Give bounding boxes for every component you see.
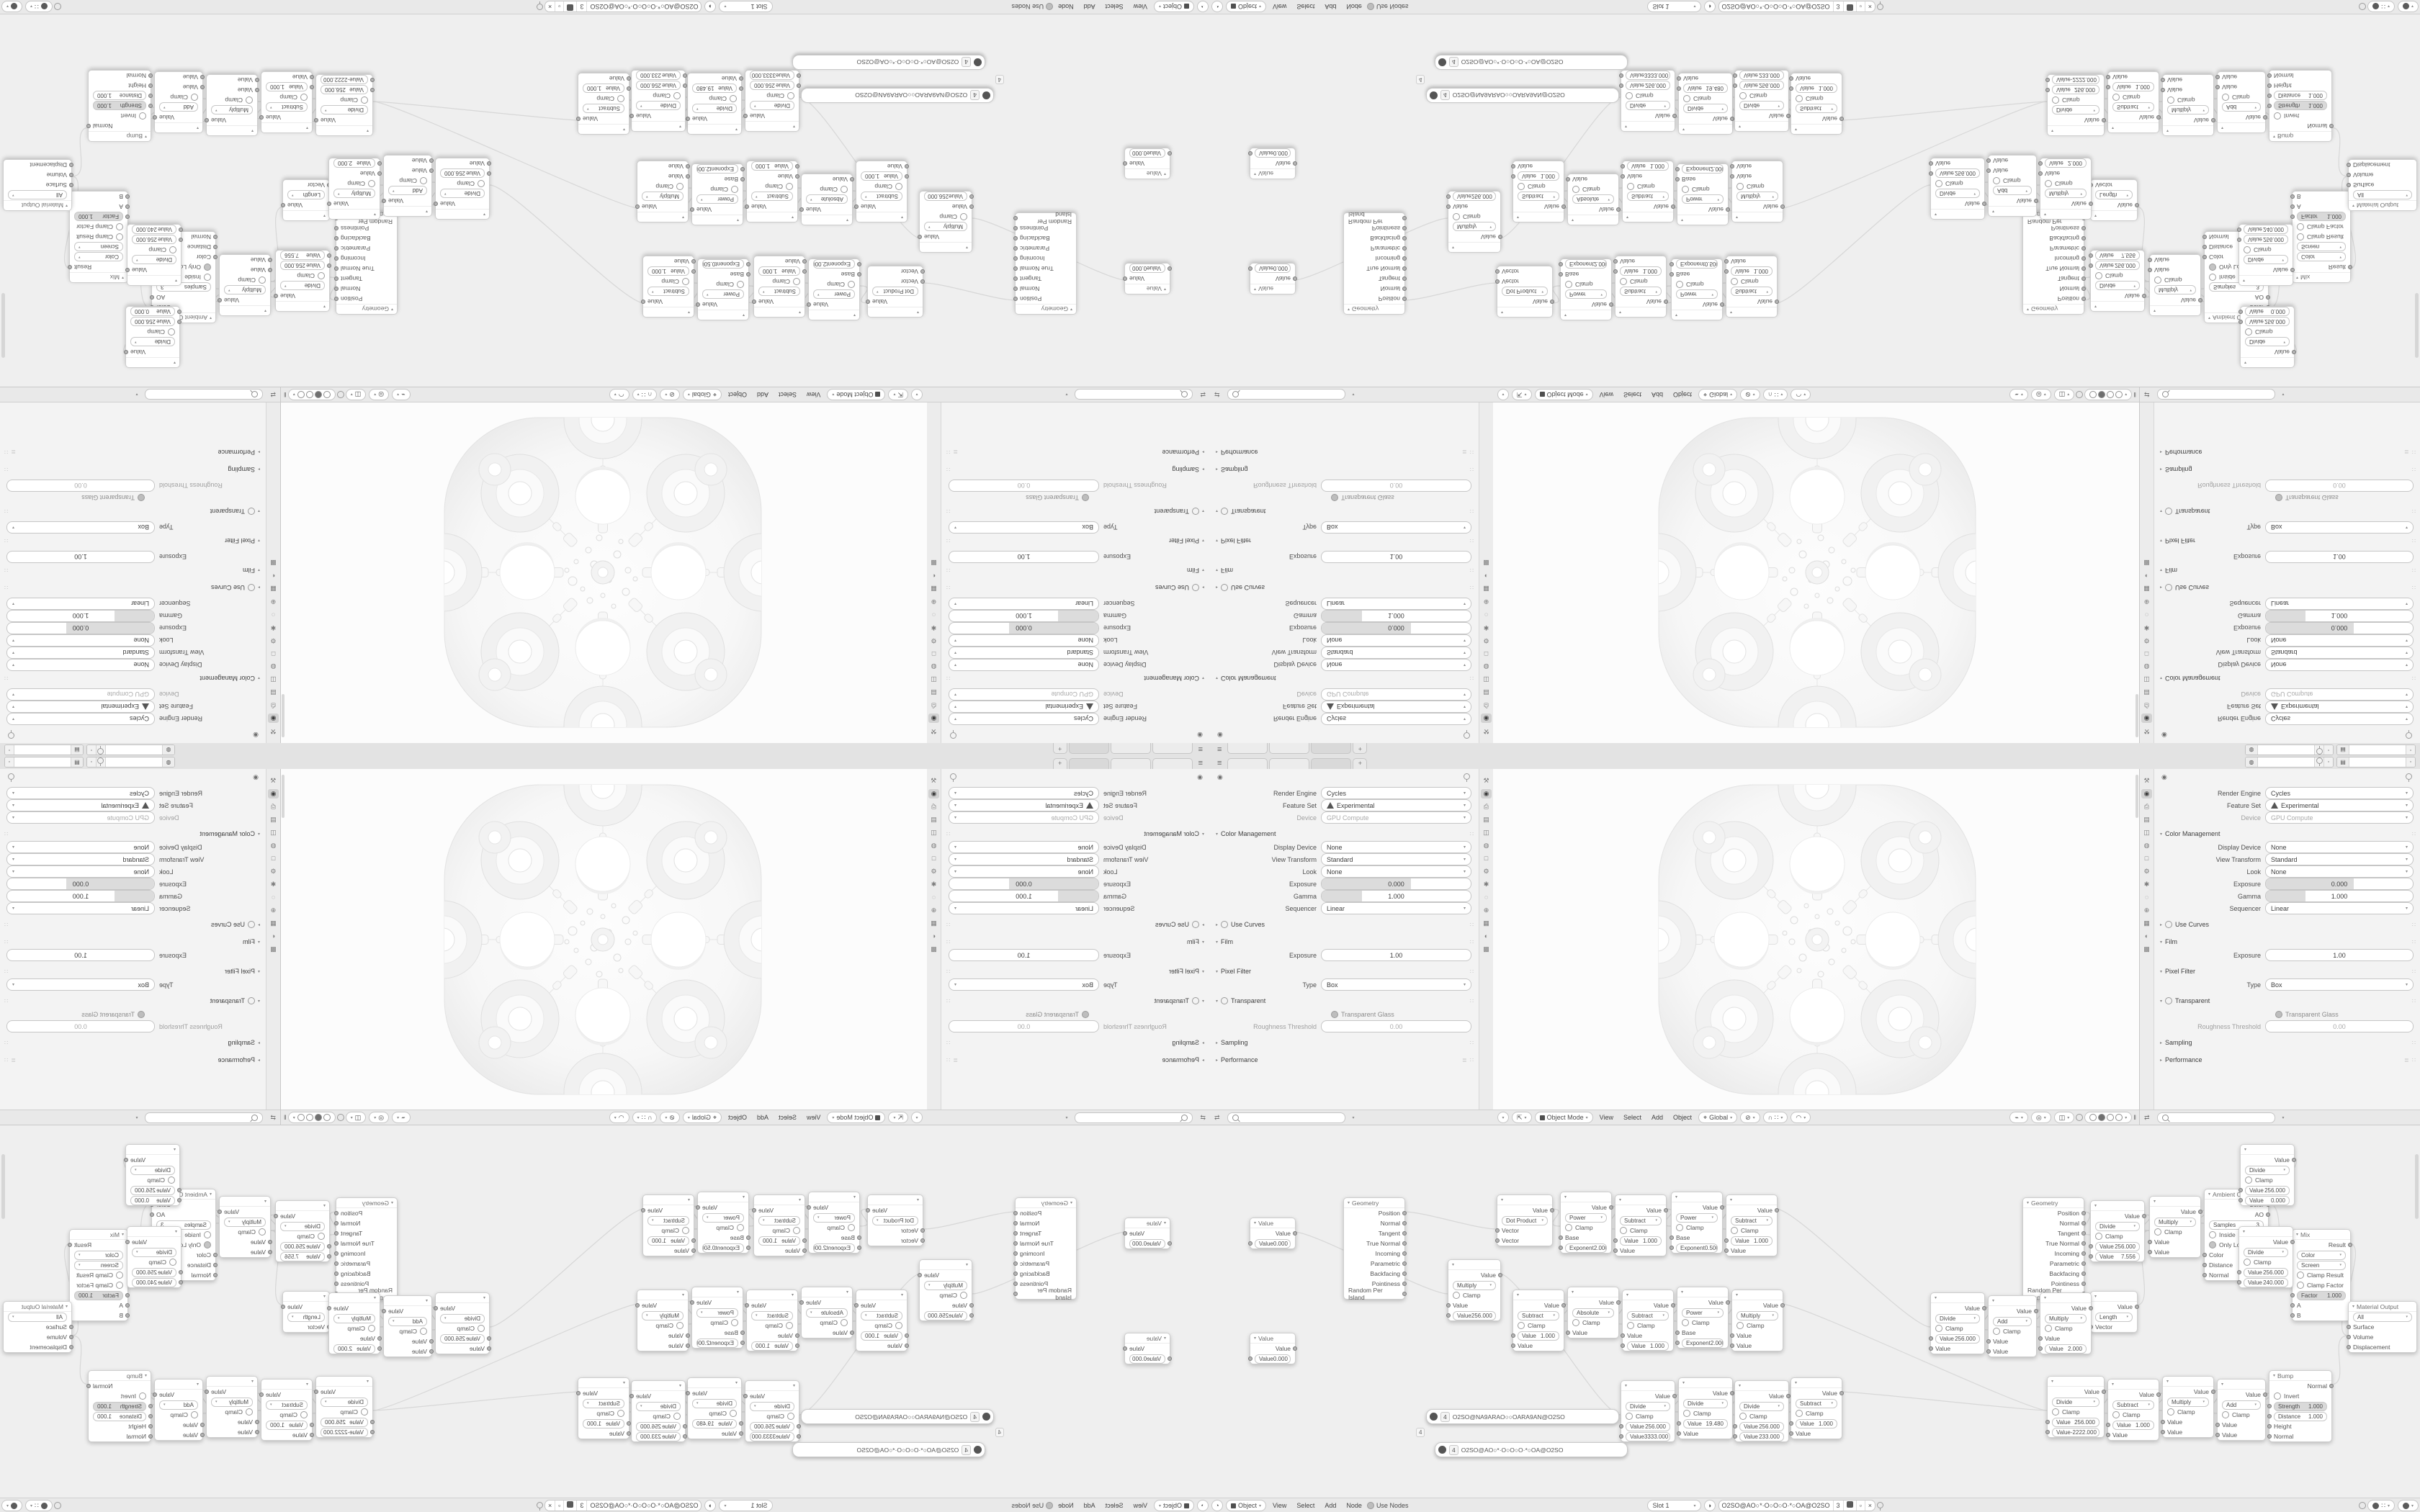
shading-mode-group[interactable]: ▾ <box>2084 389 2132 400</box>
output-socket[interactable] <box>1013 1211 1018 1215</box>
output-socket[interactable] <box>696 1205 700 1210</box>
value-field-value[interactable]: Value0.000 <box>1129 1354 1165 1364</box>
node-select-menu[interactable]: Select <box>1106 1502 1124 1509</box>
input-socket[interactable] <box>125 1293 130 1297</box>
properties-search-input[interactable] <box>1227 1112 1345 1123</box>
properties-pin-icon[interactable] <box>2406 773 2412 781</box>
scene-name-field[interactable] <box>106 757 162 767</box>
properties-search-input[interactable] <box>145 1112 263 1123</box>
select-look[interactable]: None▾ <box>6 865 155 878</box>
node-vector-math[interactable]: ▾ValueDot Product▾VectorVector <box>867 1194 923 1246</box>
properties-tab-tool-icon[interactable]: ⚒ <box>2141 726 2152 736</box>
unlink-material-button[interactable]: × <box>1865 1500 1875 1511</box>
field-exposure[interactable]: 0.000 <box>949 878 1099 890</box>
use-nodes-checkbox[interactable] <box>1046 1502 1053 1509</box>
output-socket[interactable] <box>1402 236 1407 240</box>
render-preview-dot[interactable] <box>337 391 344 398</box>
node-math[interactable]: ▾ValueSubtract▾ClampValue1.000Value <box>578 73 629 135</box>
checkbox-clamp[interactable] <box>2244 246 2251 253</box>
mode-select[interactable]: Object Mode▾ <box>827 1112 885 1123</box>
output-socket[interactable] <box>1720 1205 1724 1210</box>
node-math[interactable]: ▾ValueMultiply▾ClampValueValue256.000 <box>1448 1259 1501 1321</box>
value-field-value[interactable]: Value1.000 <box>1518 172 1559 181</box>
output-socket[interactable] <box>153 1392 157 1397</box>
value-field-value[interactable]: Value0.000 <box>130 1196 175 1205</box>
output-socket[interactable] <box>2081 266 2086 271</box>
input-socket[interactable] <box>2106 1423 2110 1427</box>
field-exposure[interactable]: 1.00 <box>6 551 155 563</box>
properties-tab-scene-icon[interactable]: ◫ <box>928 675 939 684</box>
output-socket[interactable] <box>334 246 339 251</box>
node-editor-icon[interactable]: ◔ <box>1197 1500 1209 1511</box>
input-socket[interactable] <box>2202 1253 2207 1257</box>
properties-tab-render-icon[interactable]: ◉ <box>2141 789 2152 798</box>
node-collapse-icon[interactable]: ▾ <box>251 128 254 133</box>
viewport-3d[interactable]: ▾ ⇱▾ Object Mode▾ ViewSelectAddObject ⌖ … <box>1493 387 2139 743</box>
viewport-select-menu[interactable]: Select <box>1623 1114 1641 1121</box>
section-checkbox[interactable] <box>2165 584 2172 591</box>
node-collapse-icon[interactable]: ▾ <box>1681 1290 1683 1295</box>
output-socket[interactable] <box>1013 287 1018 291</box>
operation-select[interactable]: Multiply▾ <box>2045 189 2087 199</box>
select-sequencer[interactable]: Linear▾ <box>6 902 155 914</box>
checkbox-clamp[interactable] <box>960 213 967 220</box>
output-socket[interactable] <box>799 207 804 212</box>
mode-select[interactable]: Object Mode▾ <box>1535 1112 1593 1123</box>
checkbox-clamp[interactable] <box>361 1408 368 1416</box>
input-socket[interactable] <box>850 177 854 181</box>
input-socket[interactable] <box>905 164 909 168</box>
operation-select[interactable]: Divide▾ <box>1739 102 1784 111</box>
properties-tab-tool-icon[interactable]: ⚒ <box>1481 776 1492 786</box>
orientation-select[interactable]: ⌖ Global▾ <box>1698 1112 1737 1123</box>
value-field-value[interactable]: Value7.556 <box>2095 251 2140 261</box>
datablock-bar[interactable]: 4O2SO@NA9ARAO○○OARA9AN@O2SO <box>1426 1409 1619 1424</box>
node-collapse-icon[interactable]: ▾ <box>174 1147 176 1152</box>
output-socket[interactable] <box>124 350 128 354</box>
node-collapse-icon[interactable]: ▾ <box>2094 1294 2097 1299</box>
node-math[interactable]: ▾ValueDivide▾ClampValue256.000Value0.000 <box>2240 306 2295 368</box>
input-socket[interactable] <box>802 1248 807 1253</box>
node-math[interactable]: ▾ValueMultiply▾ClampValueValue <box>206 1376 258 1438</box>
operation-select[interactable]: Divide▾ <box>2095 282 2140 291</box>
node-math[interactable]: ▾ValueSubtract▾ClampValue1.000Value <box>1726 1194 1778 1256</box>
scene-new-button[interactable]: ▫ <box>87 757 97 767</box>
properties-tab-material-icon[interactable]: ◐ <box>1481 571 1492 580</box>
node-collapse-icon[interactable]: ▾ <box>1619 310 1621 315</box>
section-checkbox[interactable] <box>1221 921 1228 928</box>
viewport-add-menu[interactable]: Add <box>757 391 768 398</box>
header-collapse-icon[interactable]: ▾ <box>1065 392 1067 397</box>
node-math[interactable]: ▾ValueDivide▾ClampValue256.000Value3333.… <box>1621 1380 1675 1442</box>
input-socket[interactable] <box>2237 1270 2241 1274</box>
output-socket[interactable] <box>807 302 811 307</box>
section-use-curves[interactable]: ▸Use Curves∷ <box>1216 918 1474 931</box>
select-device[interactable]: GPU Compute▾ <box>2265 811 2414 824</box>
snap-node-dot[interactable] <box>2359 1502 2366 1509</box>
view-layer-selector[interactable]: ▤ ▫ <box>4 757 84 768</box>
copy-material-button[interactable]: ▫ <box>555 1500 564 1511</box>
operation-select[interactable]: Subtract▾ <box>266 1400 308 1410</box>
header-collapse-icon[interactable]: ▾ <box>1353 1115 1355 1120</box>
checkbox-clamp[interactable] <box>1453 1292 1460 1299</box>
field-roughness-threshold[interactable]: 0.00 <box>2265 1020 2414 1032</box>
checkbox-clamp[interactable] <box>1518 1322 1525 1329</box>
node-collapse-icon[interactable]: ▾ <box>792 215 794 220</box>
select-look[interactable]: None▾ <box>2265 865 2414 878</box>
input-socket[interactable] <box>1621 1333 1625 1338</box>
orientation-select[interactable]: ⌖ Global▾ <box>683 1112 722 1123</box>
input-socket[interactable] <box>1670 1236 1674 1240</box>
material-pin-icon[interactable] <box>537 3 543 11</box>
node-collapse-icon[interactable]: ▾ <box>391 307 393 312</box>
operation-select[interactable]: Power▾ <box>1676 1213 1718 1223</box>
value-field-distance[interactable]: Distance1.000 <box>93 91 146 101</box>
properties-tab-output-icon[interactable]: ⎙ <box>928 701 939 710</box>
node-math[interactable]: ▾ValueDivide▾ClampValue256.000Value233.0… <box>1734 70 1789 132</box>
input-socket[interactable] <box>179 1270 183 1274</box>
node-math[interactable]: ▾ValueMultiply▾ClampValueValue2.000 <box>2040 1292 2092 1354</box>
node-node-menu[interactable]: Node <box>1346 1502 1362 1509</box>
input-socket[interactable] <box>795 1344 799 1348</box>
input-socket[interactable] <box>1559 262 1563 266</box>
checkbox-clamp[interactable] <box>1453 213 1460 220</box>
node-math[interactable]: ▾ValueDivide▾ClampValue256.000Value0.000 <box>125 1144 180 1206</box>
node-collapse-icon[interactable]: ▾ <box>1254 287 1256 292</box>
output-socket[interactable] <box>334 297 339 301</box>
node-collapse-icon[interactable]: ▾ <box>853 1194 856 1200</box>
value-field-value[interactable]: Value2.000 <box>333 1344 375 1354</box>
section-color-management[interactable]: ▾Color Management∷ <box>946 827 1204 840</box>
properties-tab-material-icon[interactable]: ◐ <box>2141 932 2152 941</box>
node-math[interactable]: ▾ValueDivide▾ClampValue19.480Value <box>1678 1377 1733 1439</box>
section-sampling[interactable]: ▸Sampling∷ <box>2160 1036 2416 1049</box>
checkbox-clamp[interactable] <box>300 1411 308 1418</box>
section-color-management[interactable]: ▾Color Management∷ <box>4 672 260 685</box>
node-math[interactable]: ▾ValueMultiply▾ClampValueValue256.000 <box>1448 191 1501 253</box>
output-socket[interactable] <box>2081 1282 2086 1286</box>
node-collapse-icon[interactable]: ▾ <box>1254 1220 1256 1225</box>
checkbox-clamp[interactable] <box>2245 328 2252 336</box>
app-menu-icon[interactable]: ≡ <box>1217 760 1222 768</box>
output-socket[interactable] <box>1013 266 1018 271</box>
node-math[interactable]: ▾ValueAbsolute▾ClampValue <box>1567 174 1619 225</box>
properties-tab-object-icon[interactable]: □ <box>1481 649 1492 658</box>
material-datablock[interactable]: O2SO@AO○*·O○O○O·*○OA@O2SO 3 ▫ × <box>544 1500 702 1511</box>
section-checkbox[interactable] <box>248 921 255 928</box>
use-nodes-checkbox[interactable] <box>1046 3 1053 10</box>
output-socket[interactable] <box>690 207 694 212</box>
checkbox-clamp[interactable] <box>730 95 737 102</box>
checkbox-clamp[interactable] <box>895 1322 902 1329</box>
node-math[interactable]: ▾ValueMultiply▾ClampValueValue <box>1731 161 1783 222</box>
output-socket[interactable] <box>2211 118 2215 122</box>
input-socket[interactable] <box>1675 177 1680 181</box>
node-math[interactable]: ▾ValuePower▾ClampBaseExponent2.000 <box>1677 1287 1729 1349</box>
operation-select[interactable]: Multiply▾ <box>2167 1398 2209 1407</box>
output-socket[interactable] <box>1839 117 1844 121</box>
node-math[interactable]: ▾ValueMultiply▾ClampValueValue <box>2162 1376 2214 1438</box>
output-socket[interactable] <box>1402 1272 1407 1276</box>
node-collapse-icon[interactable]: ▾ <box>2044 212 2046 217</box>
operation-select[interactable]: Length▾ <box>2095 191 2133 200</box>
input-socket[interactable] <box>377 161 382 166</box>
section-pixel-filter[interactable]: ▾Pixel Filter∷ <box>946 965 1204 978</box>
section-film[interactable]: ▾Film∷ <box>946 935 1204 948</box>
checkbox-clamp[interactable] <box>731 1319 738 1326</box>
node-add-menu[interactable]: Add <box>1325 1502 1336 1509</box>
node-view-menu[interactable]: View <box>1134 3 1147 10</box>
output-socket[interactable] <box>334 276 339 281</box>
editor-options-button[interactable]: ▾ <box>1497 1112 1509 1123</box>
value-field-exponent[interactable]: Exponent0.500 <box>1676 1243 1718 1253</box>
filter-icon[interactable]: ⇄ <box>1214 391 1220 399</box>
output-socket[interactable] <box>1402 1211 1407 1215</box>
node-math[interactable]: ▾ValueDivide▾ClampValue256.000Value240.0… <box>2238 1226 2293 1288</box>
input-socket[interactable] <box>1613 259 1618 264</box>
output-socket[interactable] <box>2102 1390 2106 1394</box>
value-field-distance[interactable]: Distance1.000 <box>2274 91 2327 101</box>
output-socket[interactable] <box>2198 298 2202 302</box>
field-exposure[interactable]: 1.00 <box>2265 551 2414 563</box>
node-math[interactable]: ▾ValuePower▾ClampBaseExponent2.000 <box>1560 1192 1612 1254</box>
value-field-value[interactable]: Value2.000 <box>2045 1344 2087 1354</box>
node-collapse-icon[interactable]: ▾ <box>799 1197 801 1202</box>
node-vector-math[interactable]: ▾ValueLength▾Vector <box>2090 1291 2138 1333</box>
view-layer-selector[interactable]: ▤ ▫ <box>4 744 84 755</box>
node-mix[interactable]: ▾MixResultColor▾Screen▾Clamp ResultClamp… <box>2292 191 2351 283</box>
properties-tab-scene-icon[interactable]: ◫ <box>1481 828 1492 837</box>
node-collapse-icon[interactable]: ▾ <box>2208 315 2210 320</box>
node-math[interactable]: ▾ValueSubtract▾ClampValueValue1.000 <box>746 161 798 222</box>
input-socket[interactable] <box>802 269 807 274</box>
input-socket[interactable] <box>1511 174 1515 179</box>
operation-select[interactable]: Divide▾ <box>440 189 485 199</box>
node-bump[interactable]: ▾BumpNormalInvertStrength1.000Distance1.… <box>2269 70 2332 142</box>
input-socket[interactable] <box>1613 269 1618 274</box>
node-collapse-icon[interactable]: ▾ <box>917 1197 919 1202</box>
value-field-value[interactable]: Value233.000 <box>636 71 681 81</box>
input-socket[interactable] <box>2215 75 2220 79</box>
viewport-scrollbar[interactable] <box>2136 694 2138 737</box>
input-socket[interactable] <box>1789 86 1793 91</box>
node-collapse-icon[interactable]: ▾ <box>1517 215 1519 220</box>
input-socket[interactable] <box>627 1421 631 1426</box>
input-socket[interactable] <box>200 85 205 89</box>
properties-tab-object-icon[interactable]: □ <box>2141 649 2152 658</box>
input-socket[interactable] <box>2347 1345 2351 1349</box>
checkbox-clamp[interactable] <box>1676 1224 1683 1231</box>
checkbox-clamp[interactable] <box>1626 92 1633 99</box>
operation-select[interactable]: Subtract▾ <box>1518 1311 1559 1320</box>
operation-select[interactable]: Dot Product▾ <box>1502 287 1548 297</box>
node-collapse-icon[interactable]: ▾ <box>1935 212 1937 217</box>
node-collapse-icon[interactable]: ▾ <box>846 217 848 222</box>
node-collapse-icon[interactable]: ▾ <box>1254 1336 1256 1341</box>
section-performance[interactable]: ▸Performance≣ ∷ <box>1216 1053 1474 1066</box>
node-math[interactable]: ▾ValueAdd▾ClampValueValue <box>154 1379 203 1441</box>
node-collapse-icon[interactable]: ▾ <box>367 128 369 133</box>
node-math[interactable]: ▾ValueDivide▾ClampValue256.000Value <box>435 1292 490 1354</box>
input-socket[interactable] <box>691 269 696 274</box>
operation-select[interactable]: Divide▾ <box>2244 256 2288 265</box>
output-socket[interactable] <box>1616 207 1621 212</box>
node-collapse-icon[interactable]: ▾ <box>1254 171 1256 176</box>
operation-select[interactable]: Subtract▾ <box>758 287 800 297</box>
node-snapping-select[interactable]: ∷▾ <box>25 1 53 12</box>
snap-node-dot[interactable] <box>54 3 61 10</box>
output-socket[interactable] <box>2102 118 2106 122</box>
node-math[interactable]: ▾ValueDivide▾ClampValue256.000Value240.0… <box>2238 224 2293 286</box>
proportional-edit-select[interactable]: ◠▾ <box>609 1112 629 1123</box>
node-math[interactable]: ▾ValueAdd▾ClampValueValue <box>2217 1379 2266 1441</box>
properties-tab-object-data-icon[interactable]: ▦ <box>928 584 939 593</box>
workspace-tab[interactable] <box>1227 743 1268 754</box>
copy-material-button[interactable]: ▫ <box>1856 1500 1865 1511</box>
node-math[interactable]: ▾ValueDivide▾ClampValue256.000Value7.556 <box>275 1200 330 1262</box>
editor-type-button[interactable]: ⇱▾ <box>888 1112 908 1123</box>
node-collapse-icon[interactable]: ▾ <box>793 1383 795 1388</box>
value-field-value[interactable]: Value0.000 <box>130 307 175 317</box>
datablock-bar[interactable]: 4O2SO@AO○*·O○O○O·*○OA@O2SO <box>1435 55 1628 70</box>
node-collapse-icon[interactable]: ▾ <box>2352 203 2354 208</box>
node-collapse-icon[interactable]: ▾ <box>679 124 681 129</box>
value-field-value[interactable]: Value1.000 <box>266 83 308 92</box>
select-type[interactable]: Box▾ <box>949 978 1099 991</box>
properties-tab-material-icon[interactable]: ◐ <box>1481 932 1492 941</box>
checkbox-clamp[interactable] <box>1572 1319 1579 1326</box>
select-feature-set[interactable]: Experimental▾ <box>949 799 1099 811</box>
node-math[interactable]: ▾ValueSubtract▾ClampValue1.000Value <box>1791 1377 1842 1439</box>
value-field-value[interactable]: Value1.000 <box>861 172 902 181</box>
input-socket[interactable] <box>255 88 259 92</box>
select-view-transform[interactable]: Standard▾ <box>6 647 155 659</box>
input-socket[interactable] <box>1446 1303 1451 1308</box>
output-socket[interactable] <box>1402 226 1407 230</box>
material-datablock[interactable]: O2SO@AO○*·O○O○O·*○OA@O2SO 3 ▫ × <box>1718 1 1876 12</box>
properties-tab-world-icon[interactable]: ◍ <box>2141 841 2152 850</box>
value-field-value[interactable]: Value256.000 <box>321 86 368 95</box>
value-field-factor[interactable]: Factor1.000 <box>2297 1291 2346 1300</box>
checkbox-clamp[interactable] <box>1620 1227 1627 1234</box>
properties-tab-constraints-icon[interactable]: ⊕ <box>268 906 279 915</box>
node-math[interactable]: ▾ValueMultiply▾ClampValueValue <box>2149 254 2201 316</box>
node-collapse-icon[interactable]: ▾ <box>1739 1383 1741 1388</box>
section-color-management[interactable]: ▾Color Management∷ <box>1216 672 1474 685</box>
fake-user-shield-icon[interactable] <box>1843 1500 1856 1511</box>
node-material-output[interactable]: ▾Material OutputAll▾SurfaceVolumeDisplac… <box>3 1301 72 1353</box>
node-collapse-icon[interactable]: ▾ <box>623 1380 625 1385</box>
view-layer-new-button[interactable]: ▫ <box>5 745 14 755</box>
output-socket[interactable] <box>2266 1212 2270 1217</box>
output-socket[interactable] <box>1775 1208 1779 1212</box>
node-collapse-icon[interactable]: ▾ <box>793 124 795 129</box>
select-view-transform[interactable]: Standard▾ <box>6 853 155 865</box>
value-field-value[interactable]: Value3333.000 <box>1626 71 1670 81</box>
node-editor-scrollbar[interactable] <box>2415 1154 2419 1219</box>
input-socket[interactable] <box>1495 269 1500 274</box>
node-math[interactable]: ▾ValueDivide▾ClampValue256.000Value240.0… <box>127 224 181 286</box>
filter-icon[interactable]: ⇄ <box>1200 391 1206 399</box>
value-field-value[interactable]: Value3333.000 <box>750 71 794 81</box>
input-socket[interactable] <box>1613 1248 1618 1253</box>
output-socket[interactable] <box>1293 276 1297 281</box>
properties-tab-world-icon[interactable]: ◍ <box>928 662 939 671</box>
checkbox-clamp[interactable] <box>617 95 624 102</box>
properties-tab-constraints-icon[interactable]: ⊕ <box>928 906 939 915</box>
select-render-engine[interactable]: Cycles▾ <box>2265 713 2414 725</box>
output-socket[interactable] <box>1402 287 1407 291</box>
node-collapse-icon[interactable]: ▾ <box>323 1203 326 1208</box>
output-socket[interactable] <box>2034 199 2038 203</box>
operation-select[interactable]: Divide▾ <box>2095 1222 2140 1231</box>
value-field-value[interactable]: Value0.000 <box>1129 264 1165 274</box>
select-display-device[interactable]: None▾ <box>6 841 155 853</box>
select-type[interactable]: Box▾ <box>2265 978 2414 991</box>
node-math[interactable]: ▾ValueDivide▾ClampValue256.000Value-2222… <box>2047 74 2105 136</box>
value-field-value[interactable]: Value1.000 <box>583 84 624 94</box>
input-socket[interactable] <box>691 259 696 264</box>
node-math[interactable]: ▾ValueAdd▾ClampValueValue <box>383 1295 432 1357</box>
properties-tab-object-icon[interactable]: □ <box>928 649 939 658</box>
operation-select[interactable]: Color▾ <box>2297 253 2346 262</box>
properties-tab-particles-icon[interactable]: ✱ <box>1481 623 1492 632</box>
value-field-value[interactable]: Value19.480 <box>1683 84 1728 94</box>
node-math[interactable]: ▾ValueDivide▾ClampValue256.000Value0.000 <box>2240 1144 2295 1206</box>
node-collapse-icon[interactable]: ▾ <box>1501 1197 1503 1202</box>
input-socket[interactable] <box>177 1188 181 1192</box>
node-collapse-icon[interactable]: ▾ <box>426 209 428 214</box>
operation-select[interactable]: Multiply▾ <box>333 1314 375 1323</box>
output-socket[interactable] <box>125 268 130 272</box>
properties-tab-texture-icon[interactable]: ▩ <box>1481 945 1492 954</box>
input-socket[interactable] <box>740 167 745 171</box>
output-socket[interactable] <box>1013 1241 1018 1246</box>
section-checkbox[interactable] <box>248 584 255 591</box>
xray-toggle[interactable]: ◫▾ <box>346 1112 367 1123</box>
value-field-value[interactable]: Value1.000 <box>758 1236 800 1246</box>
output-socket[interactable] <box>1293 161 1297 166</box>
node-collapse-icon[interactable]: ▾ <box>175 1229 177 1234</box>
value-field-value[interactable]: Value240.000 <box>2244 1278 2288 1287</box>
node-collapse-icon[interactable]: ▾ <box>1164 287 1166 292</box>
overlays-toggle[interactable]: ◎▾ <box>2031 389 2051 400</box>
viewport-3d[interactable]: ▾ ⇱▾ Object Mode▾ ViewSelectAddObject ⌖ … <box>281 769 927 1125</box>
properties-tab-output-icon[interactable]: ⎙ <box>268 701 279 710</box>
input-socket[interactable] <box>2089 264 2093 268</box>
input-socket[interactable] <box>857 262 861 266</box>
input-socket[interactable] <box>2347 173 2351 177</box>
checkbox-clamp[interactable] <box>1796 1410 1803 1417</box>
slot-select[interactable]: Slot 1▾ <box>720 1500 773 1511</box>
input-socket[interactable] <box>487 1346 491 1351</box>
input-socket[interactable] <box>148 1414 153 1418</box>
checkbox-clamp[interactable] <box>2045 1325 2052 1332</box>
output-socket[interactable] <box>68 1243 72 1247</box>
input-socket[interactable] <box>969 1303 974 1308</box>
input-socket[interactable] <box>1495 1238 1500 1243</box>
input-socket[interactable] <box>148 73 153 78</box>
input-socket[interactable] <box>179 238 183 242</box>
input-socket[interactable] <box>746 1236 750 1240</box>
output-socket[interactable] <box>125 1240 130 1244</box>
output-socket[interactable] <box>2266 295 2270 300</box>
datablock-bar[interactable]: 4O2SO@NA9ARAO○○OARA9AN@O2SO <box>801 88 994 103</box>
checkbox-clamp[interactable] <box>1683 95 1690 102</box>
select-type[interactable]: Box▾ <box>6 521 155 534</box>
checkbox-clamp[interactable] <box>848 1224 855 1231</box>
input-socket[interactable] <box>200 75 205 79</box>
